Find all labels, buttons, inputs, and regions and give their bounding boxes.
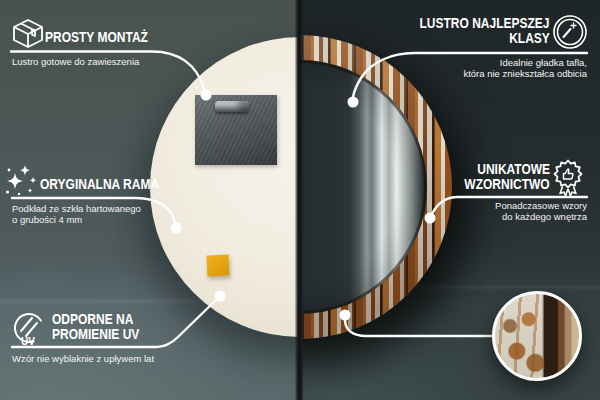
callout-prosty-montaz: PROSTY MONTAŻ bbox=[45, 30, 174, 45]
product-infographic: PROSTY MONTAŻ Lustro gotowe do zawieszen… bbox=[0, 0, 600, 400]
callout-lustro-klasy-sub: Idealnie gładka tafla, która nie znieksz… bbox=[463, 57, 587, 79]
mirror-wood-frame bbox=[300, 35, 452, 339]
callout-subtitle-line1: Podkład ze szkła hartowanego bbox=[12, 203, 141, 214]
callout-title-text: ORYGINALNA RAMA bbox=[40, 177, 159, 192]
callout-subtitle-line2: o grubości 4 mm bbox=[12, 214, 141, 225]
callout-subtitle-line1: Idealnie gładka tafla, bbox=[463, 57, 587, 68]
callout-oryginalna-rama: ORYGINALNA RAMA bbox=[40, 177, 189, 192]
callout-title: ORYGINALNA RAMA bbox=[40, 177, 189, 192]
callout-odporne-uv: ODPORNE NA PROMIENIE UV bbox=[52, 312, 161, 341]
mirror-glass-reflection bbox=[300, 60, 427, 314]
texture-detail-inset bbox=[492, 291, 582, 381]
callout-title: PROMIENIE UV bbox=[52, 327, 161, 342]
callout-unikatowe-sub: Ponadczasowe wzory do każdego wnętrza bbox=[495, 200, 587, 222]
package-box-icon bbox=[10, 16, 46, 52]
callout-subtitle-line2: do każdego wnętrza bbox=[495, 211, 587, 222]
mirror-shine-icon bbox=[551, 13, 589, 51]
callout-title: WZORNICTWO bbox=[443, 177, 550, 192]
callout-title-line2: WZORNICTWO bbox=[465, 177, 550, 192]
callout-subtitle: Lustro gotowe do zawieszenia bbox=[12, 56, 139, 67]
callout-odporne-uv-sub: Wzór nie wyblaknie z upływem lat bbox=[12, 353, 154, 364]
callout-title: KLASY bbox=[387, 31, 550, 46]
callout-subtitle-line1: Ponadczasowe wzory bbox=[495, 200, 587, 211]
callout-title: PROSTY MONTAŻ bbox=[45, 30, 174, 45]
uv-protection-icon: UV bbox=[10, 310, 50, 350]
quality-badge-icon bbox=[551, 159, 587, 199]
split-divider bbox=[295, 0, 303, 400]
yellow-sticky-note bbox=[207, 255, 230, 277]
callout-subtitle: Wzór nie wyblaknie z upływem lat bbox=[12, 353, 154, 364]
uv-label: UV bbox=[21, 336, 35, 347]
callout-prosty-montaz-sub: Lustro gotowe do zawieszenia bbox=[12, 56, 139, 67]
callout-oryginalna-rama-sub: Podkład ze szkła hartowanego o grubości … bbox=[12, 203, 141, 225]
callout-title-text: PROSTY MONTAŻ bbox=[45, 30, 148, 45]
callout-title-line2: PROMIENIE UV bbox=[52, 327, 139, 342]
callout-subtitle-line2: która nie zniekształca odbicia bbox=[463, 68, 587, 79]
callout-lustro-klasy: LUSTRO NAJLEPSZEJ KLASY bbox=[387, 16, 550, 45]
mounting-plate bbox=[195, 95, 277, 165]
callout-title-line2: KLASY bbox=[509, 31, 550, 46]
sparkles-icon bbox=[3, 161, 41, 199]
callout-unikatowe-wzornictwo: UNIKATOWE WZORNICTWO bbox=[443, 162, 550, 191]
hanging-hook bbox=[215, 101, 249, 112]
